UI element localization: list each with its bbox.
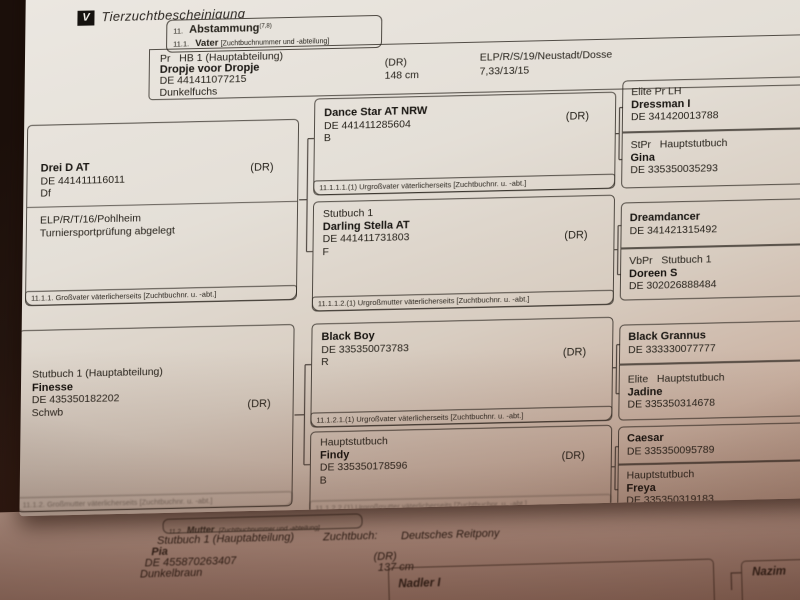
certificate-page: V Tierzuchtbescheinigung 11.Abstammung(7…	[19, 0, 800, 516]
photographed-breeding-certificate: { "header": { "badge": "V", "title": "Ti…	[0, 0, 800, 600]
pedigree-connector-lines	[19, 0, 800, 516]
